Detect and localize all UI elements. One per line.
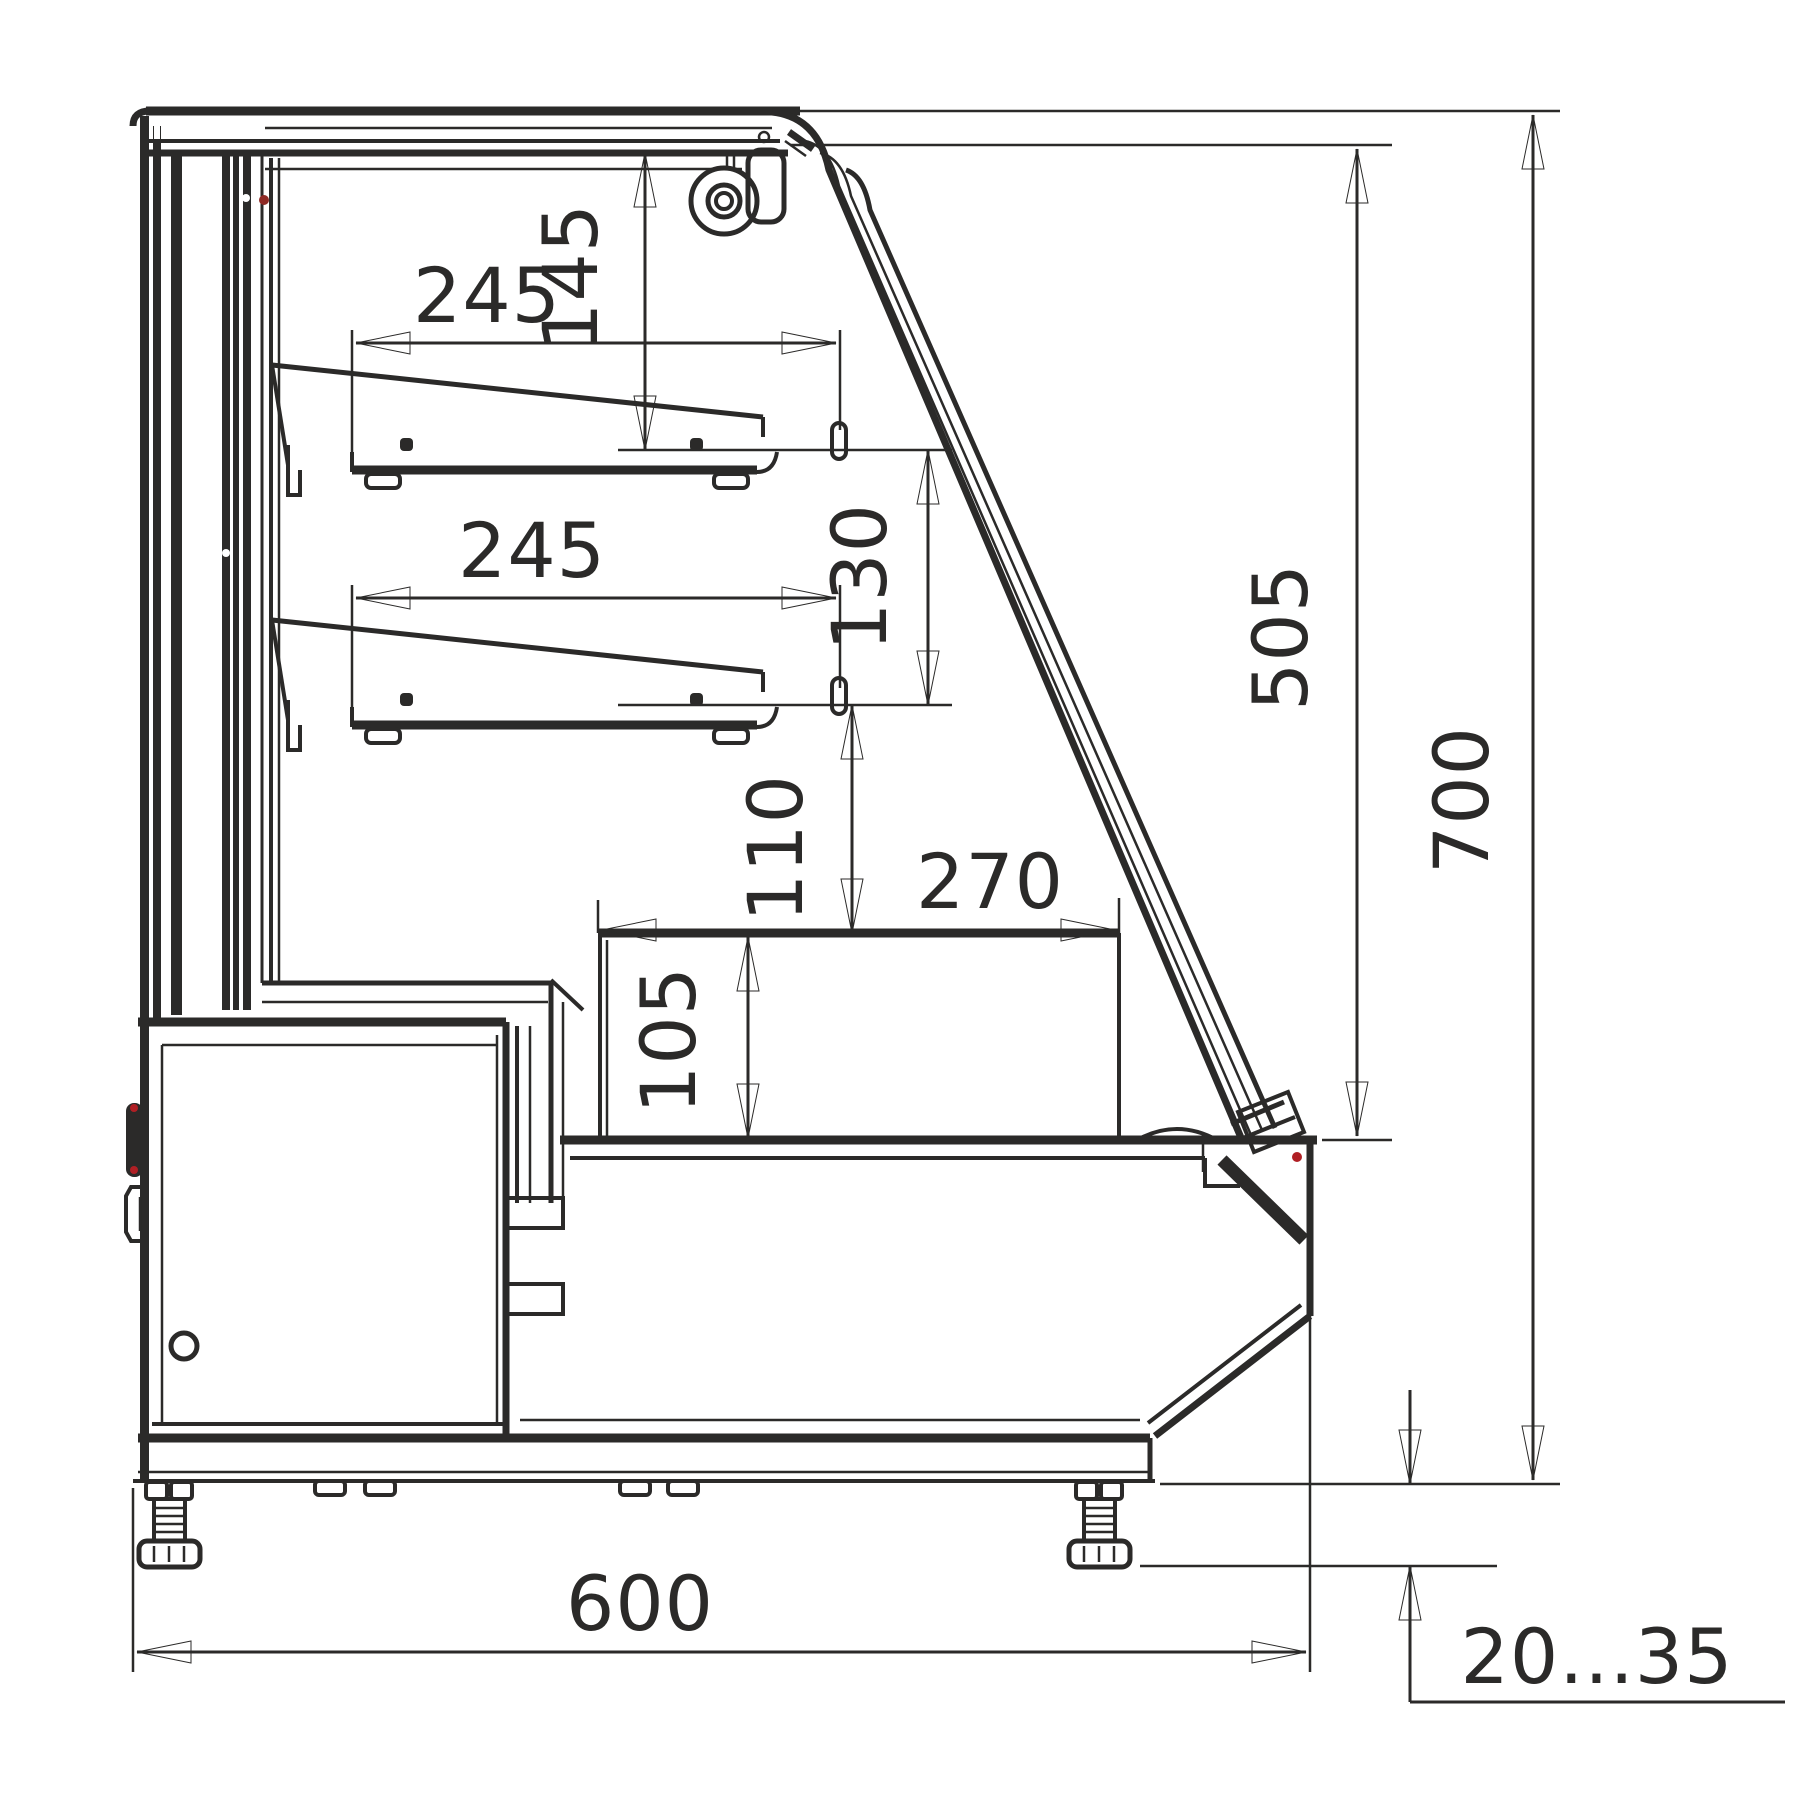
dim-total-depth: 600	[133, 1316, 1310, 1672]
dim-deck-height: 105	[624, 937, 748, 1138]
shelf2-screw-right	[690, 693, 703, 706]
drawing-page: 245 145 245 130 110 270 105 505	[0, 0, 1800, 1813]
dim-label: 130	[815, 503, 904, 651]
joint-tab-lower	[506, 1284, 563, 1314]
shelf2-clip-right	[714, 729, 748, 743]
shelf2-screw-left	[400, 693, 413, 706]
door-latch	[126, 1103, 143, 1177]
case-floor	[520, 1129, 1317, 1420]
red-marker-sill	[1292, 1152, 1302, 1162]
shelf1-screw-right	[690, 438, 703, 451]
dim-shelf1-to-shelf2: 130	[815, 450, 928, 705]
adjustable-foot-right	[1069, 1482, 1130, 1567]
shoulder-chamfer	[551, 980, 583, 1010]
foot-stem	[1084, 1499, 1115, 1541]
dim-label: 700	[1417, 726, 1506, 874]
dim-label: 20...35	[1461, 1612, 1734, 1701]
machine-compartment	[126, 983, 563, 1436]
dim-label: 270	[916, 837, 1064, 926]
latch-red-bottom	[130, 1166, 138, 1174]
dim-shelf2-width: 245	[352, 506, 840, 710]
door-handle-hole	[171, 1333, 197, 1359]
foot-stem	[154, 1499, 185, 1541]
shelf2-clip-left	[366, 729, 400, 743]
base-frame	[133, 1438, 1155, 1495]
dim-deck-width: 270	[598, 837, 1119, 933]
lamp-mid	[708, 185, 740, 217]
panel-slot	[154, 123, 160, 139]
joint-tab-upper	[506, 1198, 563, 1228]
shelf-1	[272, 365, 952, 495]
technical-drawing: 245 145 245 130 110 270 105 505	[0, 0, 1800, 1813]
panel-screw-top	[242, 194, 250, 202]
light-fixture	[691, 132, 784, 234]
dim-label: 105	[624, 966, 713, 1114]
compartment-door	[152, 1045, 506, 1424]
latch-red-top	[130, 1104, 138, 1112]
shelf1-clip-right	[714, 474, 748, 488]
dim-label: 145	[526, 203, 615, 351]
adjustable-foot-left	[139, 1482, 200, 1567]
dim-foot-adjust: 20...35	[1140, 1390, 1785, 1702]
dim-canopy-to-shelf1: 145	[526, 153, 645, 450]
dim-label: 600	[566, 1559, 714, 1648]
red-marker-top	[259, 195, 269, 205]
nose-shade	[1222, 1160, 1304, 1240]
shelf1-clip-left	[366, 474, 400, 488]
glass-bottom-clamp	[1231, 1092, 1304, 1162]
dim-label: 245	[458, 506, 606, 595]
back-panel	[133, 111, 279, 1480]
lamp-inner	[716, 193, 732, 209]
panel-screw-mid	[222, 549, 230, 557]
dim-total-height: 700	[800, 111, 1560, 1484]
shelf1-screw-left	[400, 438, 413, 451]
dim-label: 110	[731, 774, 820, 922]
dim-label: 505	[1236, 563, 1325, 711]
